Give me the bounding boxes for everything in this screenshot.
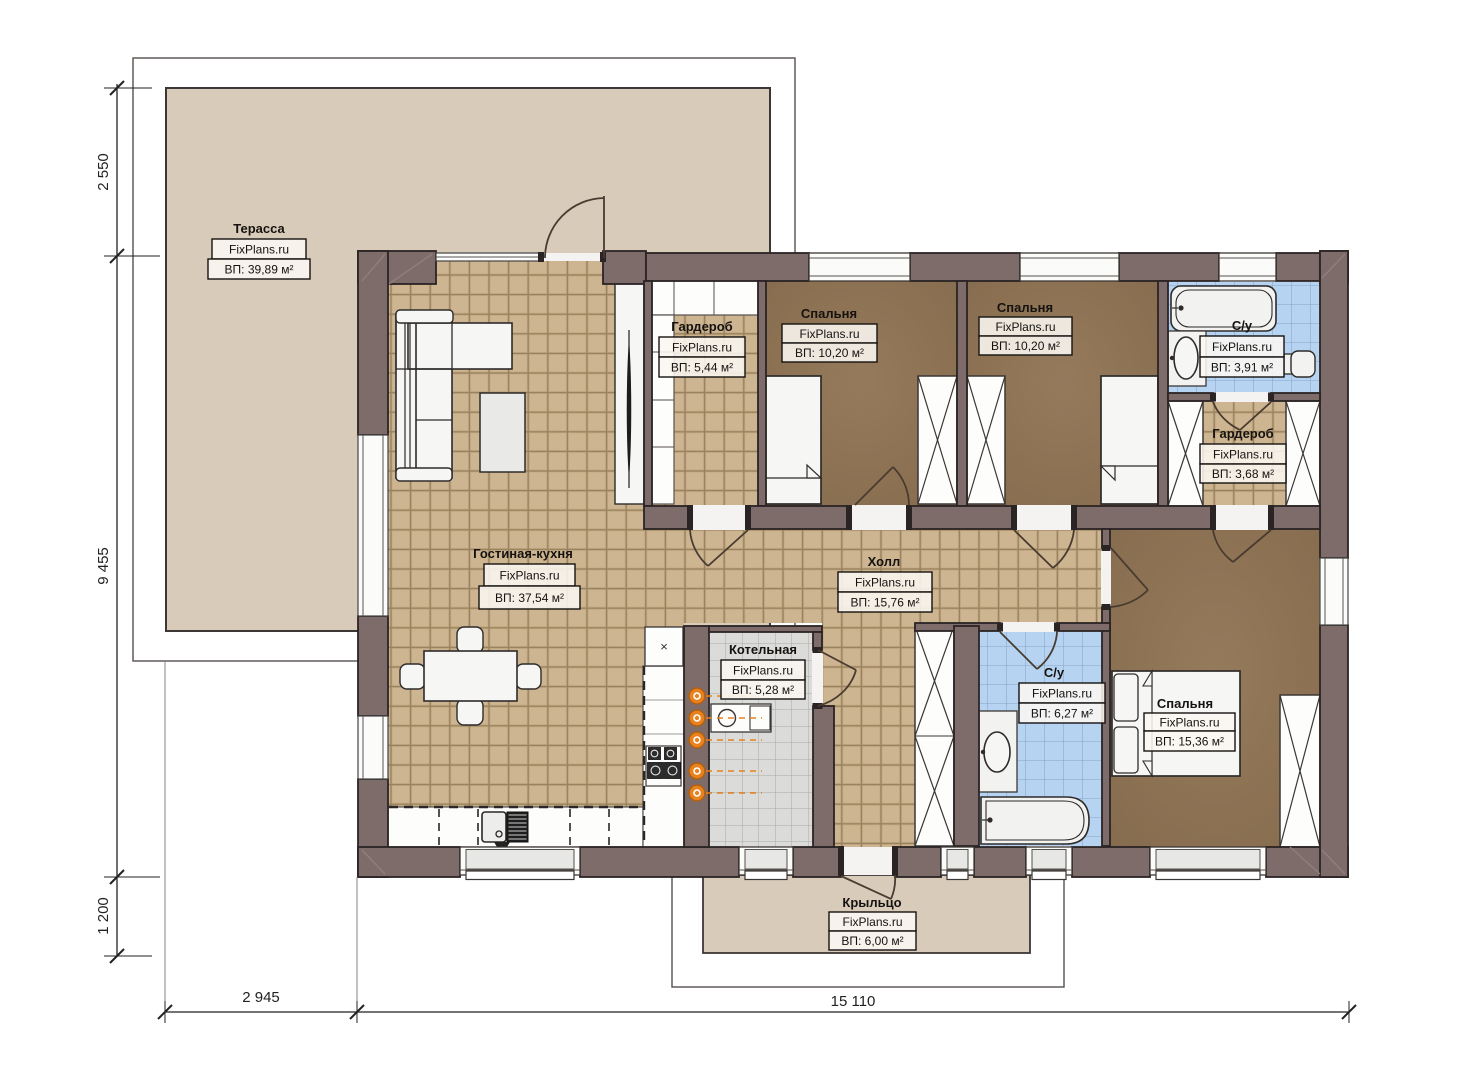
svg-text:Спальня: Спальня	[801, 306, 857, 321]
svg-text:ВП: 3,91 м²: ВП: 3,91 м²	[1211, 361, 1273, 375]
svg-text:FixPlans.ru: FixPlans.ru	[799, 327, 859, 341]
svg-text:Холл: Холл	[868, 554, 901, 569]
svg-text:FixPlans.ru: FixPlans.ru	[499, 569, 559, 583]
svg-text:Спальня: Спальня	[1157, 696, 1213, 711]
svg-text:FixPlans.ru: FixPlans.ru	[229, 243, 289, 257]
svg-text:ВП: 37,54 м²: ВП: 37,54 м²	[495, 591, 564, 605]
svg-text:ВП: 5,44 м²: ВП: 5,44 м²	[671, 361, 733, 375]
svg-text:Терасса: Терасса	[233, 221, 285, 236]
svg-text:ВП: 6,27 м²: ВП: 6,27 м²	[1031, 707, 1093, 721]
svg-text:9 455: 9 455	[95, 547, 112, 585]
svg-text:2 550: 2 550	[95, 153, 112, 191]
svg-text:ВП: 3,68 м²: ВП: 3,68 м²	[1212, 467, 1274, 481]
svg-text:FixPlans.ru: FixPlans.ru	[855, 576, 915, 590]
svg-text:Котельная: Котельная	[729, 642, 797, 657]
svg-text:С/у: С/у	[1232, 318, 1253, 333]
svg-text:Гостиная-кухня: Гостиная-кухня	[473, 546, 573, 561]
svg-text:FixPlans.ru: FixPlans.ru	[995, 320, 1055, 334]
svg-text:Гардероб: Гардероб	[671, 319, 732, 334]
svg-text:Гардероб: Гардероб	[1212, 426, 1273, 441]
svg-text:1 200: 1 200	[95, 897, 112, 935]
svg-text:Крыльцо: Крыльцо	[842, 895, 901, 910]
svg-text:15 110: 15 110	[831, 993, 876, 1010]
svg-text:FixPlans.ru: FixPlans.ru	[1032, 687, 1092, 701]
svg-text:FixPlans.ru: FixPlans.ru	[842, 915, 902, 929]
svg-text:Спальня: Спальня	[997, 300, 1053, 315]
svg-text:ВП: 15,36 м²: ВП: 15,36 м²	[1155, 735, 1224, 749]
svg-text:ВП: 10,20 м²: ВП: 10,20 м²	[991, 339, 1060, 353]
svg-text:FixPlans.ru: FixPlans.ru	[1212, 340, 1272, 354]
svg-text:ВП: 5,28 м²: ВП: 5,28 м²	[732, 683, 794, 697]
svg-text:2 945: 2 945	[242, 989, 280, 1006]
svg-text:×: ×	[660, 639, 668, 654]
svg-text:FixPlans.ru: FixPlans.ru	[1159, 716, 1219, 730]
svg-text:ВП: 10,20 м²: ВП: 10,20 м²	[795, 346, 864, 360]
svg-text:FixPlans.ru: FixPlans.ru	[672, 341, 732, 355]
svg-text:FixPlans.ru: FixPlans.ru	[1213, 448, 1273, 462]
svg-text:ВП: 39,89 м²: ВП: 39,89 м²	[225, 263, 294, 277]
svg-text:FixPlans.ru: FixPlans.ru	[733, 664, 793, 678]
svg-text:ВП: 15,76 м²: ВП: 15,76 м²	[851, 596, 920, 610]
svg-text:ВП: 6,00 м²: ВП: 6,00 м²	[841, 934, 903, 948]
svg-text:С/у: С/у	[1044, 665, 1065, 680]
